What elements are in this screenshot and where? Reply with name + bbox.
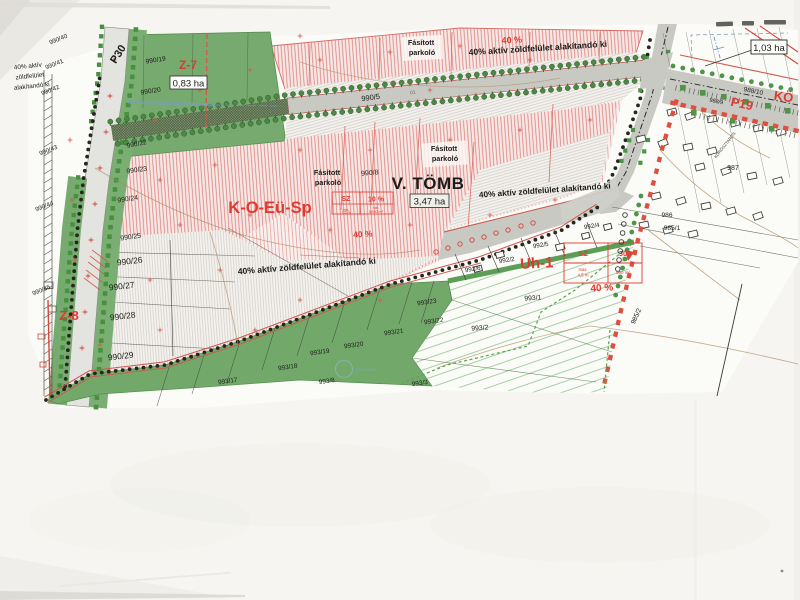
svg-text:0,83 ha: 0,83 ha [173, 79, 205, 90]
svg-text:V. TÖMB: V. TÖMB [392, 174, 465, 193]
svg-text:500 m²: 500 m² [616, 270, 630, 275]
svg-text:987: 987 [727, 165, 739, 172]
svg-text:7,5 m: 7,5 m [341, 211, 351, 215]
svg-text:1,03 ha: 1,03 ha [753, 43, 785, 54]
svg-text:Környezet: Környezet [356, 367, 377, 372]
svg-text:986: 986 [661, 212, 672, 219]
svg-text:01: 01 [410, 90, 417, 97]
svg-text:Z-8: Z-8 [59, 308, 79, 323]
svg-text:parkoló: parkoló [432, 154, 459, 163]
svg-text:SZ: SZ [342, 196, 352, 203]
svg-text:40 %: 40 % [353, 228, 373, 239]
svg-text:K-O-Eü-Sp: K-O-Eü-Sp [228, 199, 311, 217]
svg-text:985/1: 985/1 [664, 225, 681, 232]
svg-text:4,5 m: 4,5 m [578, 273, 589, 278]
svg-text:993/2: 993/2 [471, 324, 489, 332]
svg-text:parkoló: parkoló [315, 178, 342, 187]
svg-text:Uh-1: Uh-1 [520, 254, 554, 273]
svg-text:KÖ: KÖ [773, 88, 794, 106]
svg-text:max.: max. [578, 267, 587, 272]
svg-text:Fásított: Fásított [314, 168, 341, 177]
svg-text:parkoló: parkoló [409, 48, 436, 57]
svg-text:Z-7: Z-7 [179, 58, 197, 72]
svg-text:Fásított: Fásított [408, 38, 435, 47]
svg-text:40 %: 40 % [590, 282, 613, 294]
svg-text:SZ: SZ [578, 249, 588, 258]
svg-text:993/1: 993/1 [524, 294, 542, 302]
svg-text:Fásított: Fásított [431, 144, 458, 153]
svg-text:10 %: 10 % [368, 197, 385, 204]
svg-text:3,47 ha: 3,47 ha [414, 197, 446, 208]
svg-text:5000 m²: 5000 m² [369, 210, 384, 214]
